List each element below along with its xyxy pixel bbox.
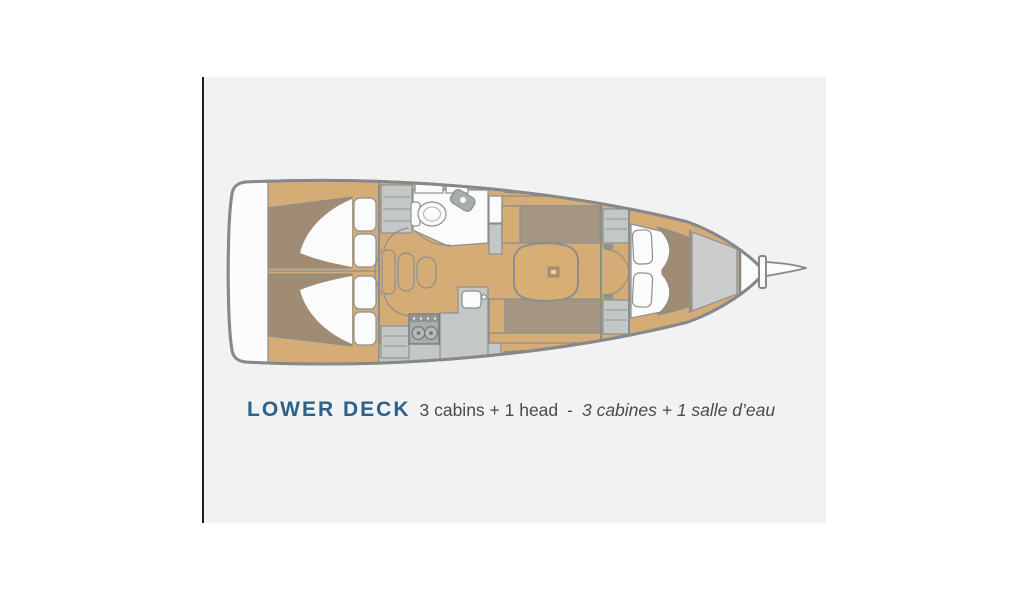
- caption-spec-en: 3 cabins + 1 head: [420, 400, 559, 421]
- caption-title: LOWER DECK: [247, 398, 411, 422]
- caption-separator: -: [567, 400, 573, 421]
- brochure-panel: [204, 77, 826, 523]
- deck-caption: LOWER DECK 3 cabins + 1 head - 3 cabines…: [247, 398, 775, 422]
- caption-spec-fr: 3 cabines + 1 salle d’eau: [582, 400, 775, 421]
- page: LOWER DECK 3 cabins + 1 head - 3 cabines…: [0, 0, 1024, 600]
